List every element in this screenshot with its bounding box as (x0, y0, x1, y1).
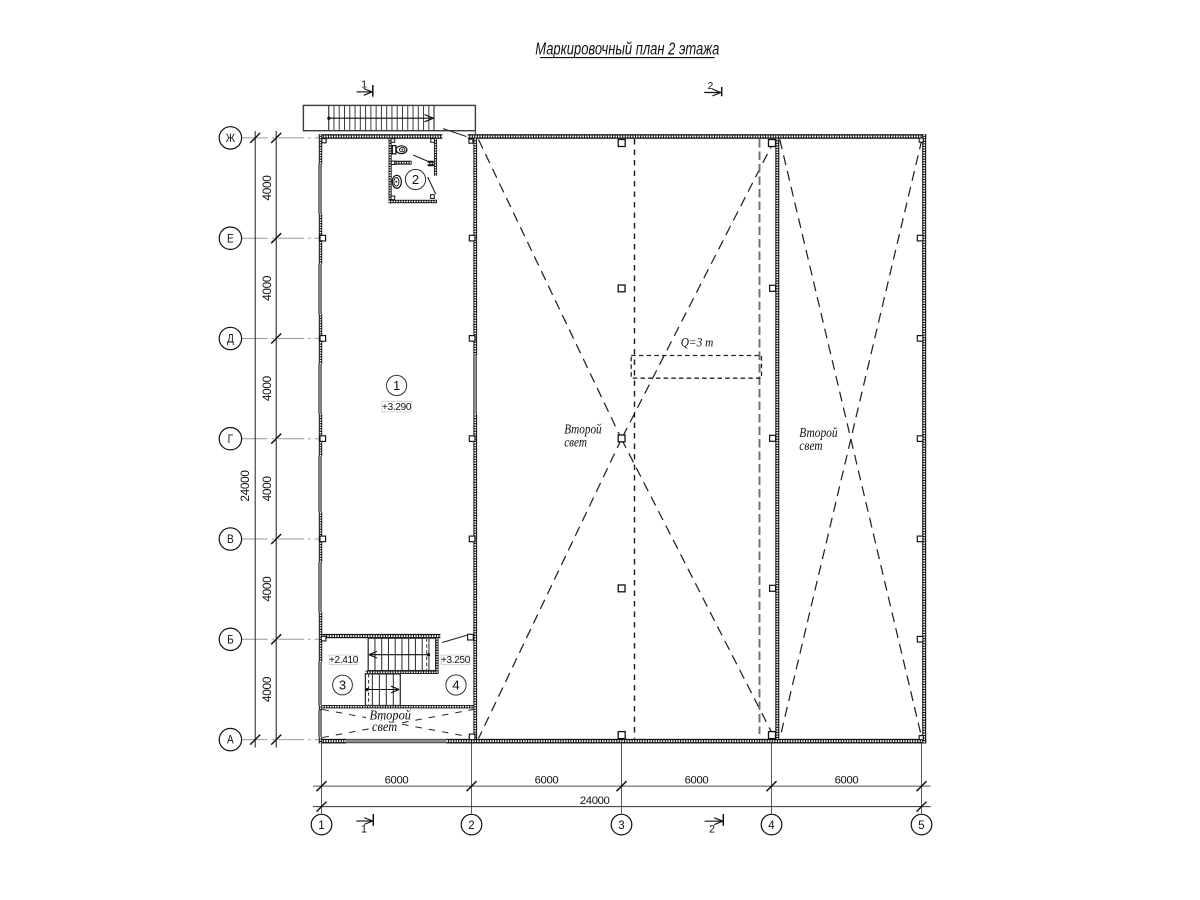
svg-text:2: 2 (412, 172, 419, 187)
svg-text:2: 2 (709, 824, 715, 836)
svg-text:4: 4 (768, 820, 775, 832)
svg-text:4000: 4000 (260, 375, 274, 401)
svg-text:+3.250: +3.250 (441, 655, 471, 666)
svg-text:Маркировочный план 2 этажа: Маркировочный план 2 этажа (535, 40, 719, 59)
svg-text:24000: 24000 (238, 470, 252, 502)
svg-text:1: 1 (361, 823, 367, 835)
svg-text:4000: 4000 (260, 175, 274, 201)
svg-text:свет: свет (564, 434, 587, 449)
svg-text:3: 3 (339, 678, 346, 693)
svg-text:6000: 6000 (685, 774, 709, 786)
svg-text:4000: 4000 (260, 576, 274, 602)
svg-text:6000: 6000 (535, 774, 559, 786)
svg-text:Ж: Ж (226, 132, 235, 145)
svg-text:6000: 6000 (835, 774, 859, 786)
svg-text:Г: Г (228, 433, 234, 446)
svg-text:4000: 4000 (260, 676, 274, 702)
svg-text:2: 2 (707, 80, 713, 92)
svg-text:Q=3 т: Q=3 т (681, 335, 714, 350)
svg-text:Б: Б (227, 634, 234, 647)
svg-text:4000: 4000 (260, 476, 274, 502)
svg-text:1: 1 (318, 820, 324, 832)
svg-text:+2.410: +2.410 (329, 655, 359, 666)
svg-text:Д: Д (227, 333, 234, 346)
svg-text:24000: 24000 (580, 795, 610, 807)
svg-text:6000: 6000 (385, 774, 409, 786)
svg-text:Е: Е (227, 233, 234, 246)
svg-text:В: В (227, 534, 234, 547)
svg-text:5: 5 (918, 820, 924, 832)
svg-text:2: 2 (468, 820, 474, 832)
svg-text:свет: свет (372, 720, 397, 734)
svg-text:свет: свет (799, 438, 822, 453)
svg-text:А: А (227, 734, 234, 747)
svg-text:4: 4 (452, 678, 459, 693)
svg-text:1: 1 (393, 378, 400, 393)
svg-text:3: 3 (618, 820, 624, 832)
svg-text:4000: 4000 (260, 275, 274, 301)
svg-text:+3.290: +3.290 (382, 402, 412, 413)
